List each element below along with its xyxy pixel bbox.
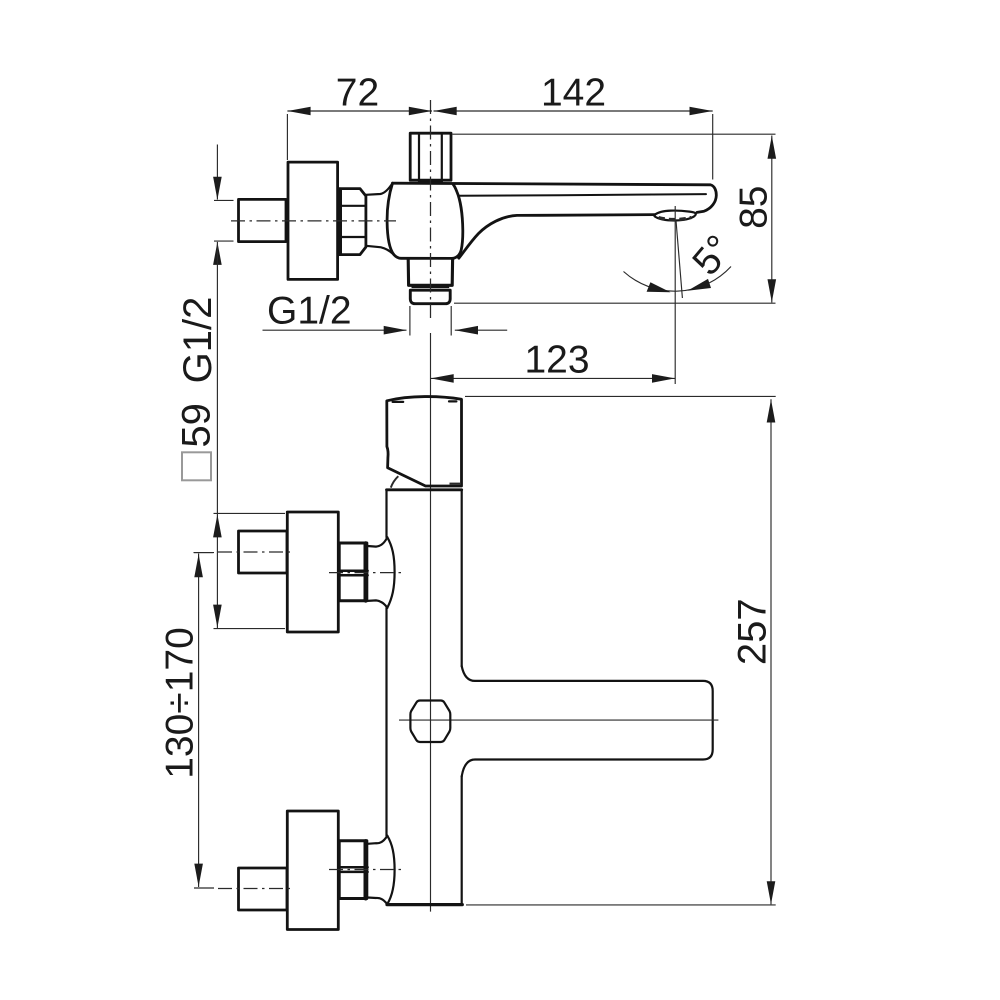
svg-text:142: 142 <box>541 72 606 115</box>
svg-text:85: 85 <box>733 186 776 229</box>
svg-text:59: 59 <box>175 403 219 448</box>
svg-text:G1/2: G1/2 <box>176 297 220 384</box>
svg-text:G1/2: G1/2 <box>267 290 352 333</box>
svg-text:130÷170: 130÷170 <box>158 627 201 779</box>
svg-text:123: 123 <box>524 339 589 382</box>
svg-text:72: 72 <box>336 72 379 115</box>
svg-text:257: 257 <box>731 598 775 665</box>
